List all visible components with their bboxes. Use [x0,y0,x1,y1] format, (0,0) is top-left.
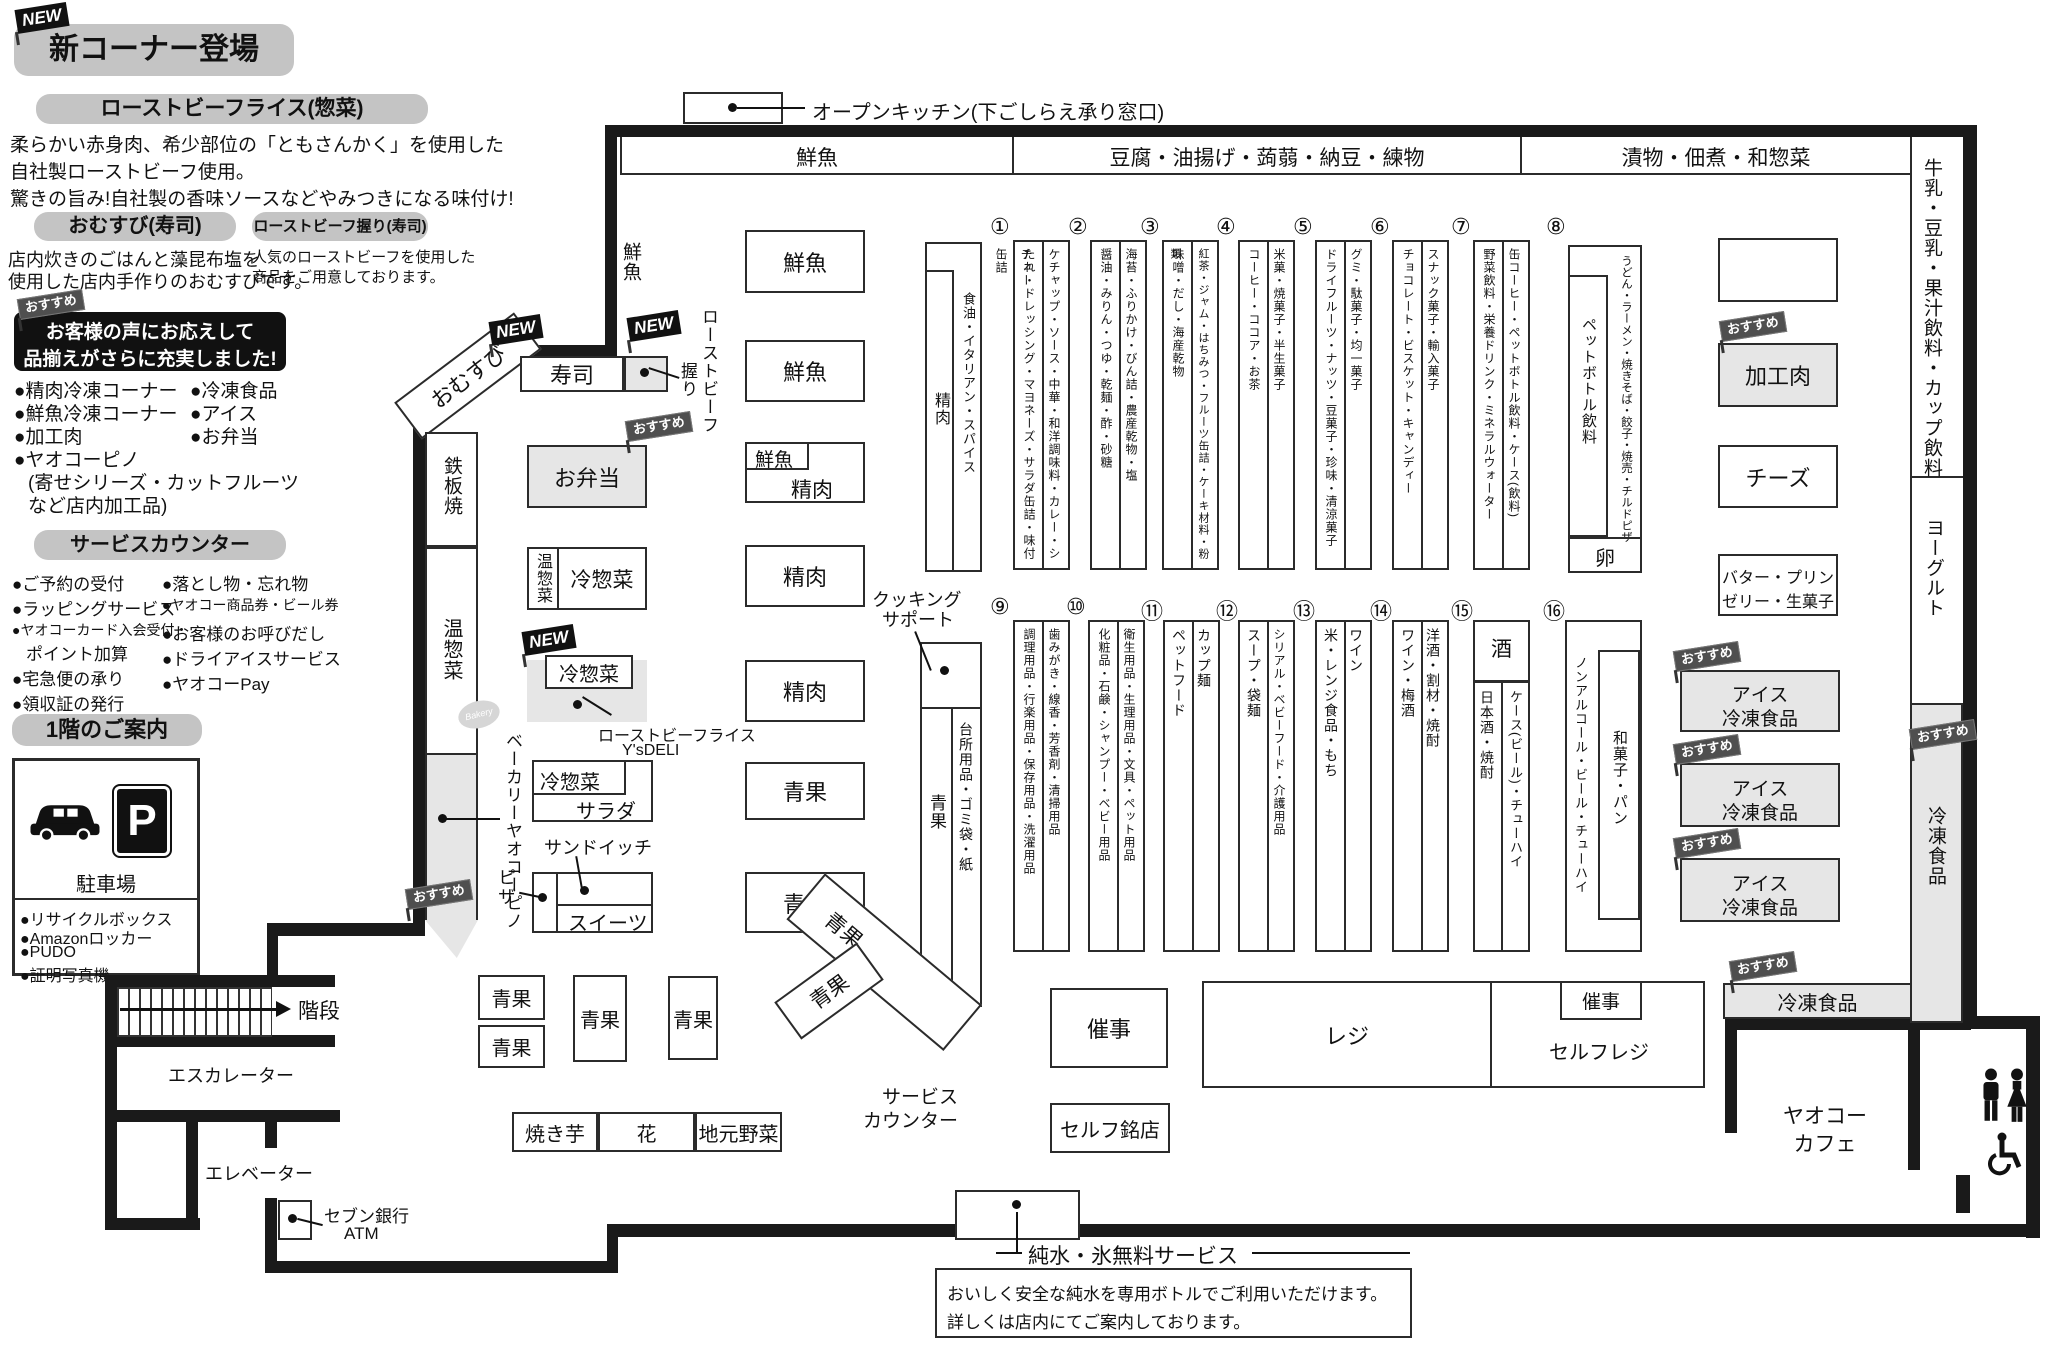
wall-right-upper [1963,125,1977,1026]
salad-label: サラダ [576,795,636,824]
selfmeiten-label: セルフ銘店 [1052,1105,1168,1151]
sake-label: 酒 [1475,628,1528,668]
aisle-9-left: 調理用品・行楽用品・保存用品・洗濯用品 [1015,628,1043,944]
wall-bottom [612,1224,2040,1237]
osusume-flag-icon: おすすめ [1673,734,1741,765]
nigiri-dot [640,368,649,377]
obento-box: お弁当 [527,445,647,508]
aisle-number: ③ [1140,214,1160,240]
woman-icon [2004,1068,2030,1124]
wall-room-bottom [105,1218,200,1230]
osusume-flag-icon: おすすめ [1673,641,1741,672]
kakoniku-label: 加工肉 [1720,345,1836,405]
seiniku-label: 精肉 [932,392,948,426]
aisle-13-right: ワイン [1342,628,1370,944]
empty-box [1718,238,1838,302]
ice-frozen-box: アイス 冷凍食品 [1680,670,1840,732]
selfmeiten-box: セルフ銘店 [1050,1103,1170,1153]
reisozai-label: 冷惣菜 [547,657,631,687]
osusume-flag-icon: おすすめ [1673,828,1741,859]
seika-diagonal-tag: 青果 [774,942,884,1039]
wall-stairs-top [105,975,335,987]
wall-bottom-left [267,1261,613,1273]
seiniku-box: 精肉 [745,660,865,722]
stairs-arrow-line [120,1008,278,1011]
ysdeli-label: Y'sDELI [622,742,679,760]
divider [624,762,626,793]
cafe-label-1: ヤオコー [1755,1100,1895,1130]
stairs [117,987,272,1037]
divider [1501,682,1503,950]
aisle-10: 化粧品・石鹸・シャンプー・ベビー用品 衛生用品・生理用品・文具・ペット用品 [1088,620,1145,952]
atm-dot [288,1214,297,1223]
sandwich-dot [580,886,589,895]
svc-item: ●宅急便の承り [12,665,124,690]
panel-title-new-corner: 新コーナー登場 [14,24,294,76]
aisle-4: コーヒー・ココア・お茶 米菓・焼菓子・半生菓子 [1238,240,1295,570]
reisozai-box: 冷惣菜 [545,655,633,689]
aisle-4-right: 米菓・焼菓子・半生菓子 [1265,248,1293,562]
parking-sign-icon: P [114,786,170,856]
aisle-1-left: たれ・ドレッシング・マヨネーズ・サラダ缶詰・味付缶詰 [1015,248,1043,562]
saiji-box: 催事 [1050,988,1168,1068]
reji-label: レジ [1204,983,1490,1086]
atm-label: ATM [344,1224,379,1244]
aisle-1: たれ・ドレッシング・マヨネーズ・サラダ缶詰・味付缶詰 ケチャップ・ソース・中華・… [1013,240,1070,570]
aisle-number: ⑥ [1370,214,1390,240]
sandwich-label: サンドイッチ [544,834,652,860]
parking-label: 駐車場 [12,868,200,897]
aisle-number: ⑧ [1546,214,1566,240]
aisle-7-right: 缶コーヒー・ペットボトル飲料・ケース(飲料) [1500,248,1528,562]
divider [1490,983,1492,1086]
wall-stairs-left [105,975,117,1230]
wheelchair-icon [1988,1132,2024,1176]
aisle-2-right: 海苔・ふりかけ・びん詰・農産乾物・塩 [1117,248,1145,562]
onsozai-band-label: 温惣菜 [441,618,461,681]
left-sengyo-label: 鮮魚 [621,242,640,282]
service-counter-map-label: サービス [858,1082,958,1109]
aisle-5-left: ドライフルーツ・ナッツ・豆菓子・珍味・清涼菓子 [1317,248,1345,562]
rb-nigiri-desc-1: 人気のローストビーフを使用した [252,246,475,267]
aisle-number: ⑫ [1216,594,1238,626]
aisle-14-right: 洋酒・割材・焼酎 [1419,628,1447,944]
aisle-9-right: 歯みがき・線香・芳香剤・清掃用品 [1040,628,1068,944]
aisle-15-left: 日本酒・焼酎 [1480,690,1494,780]
aisle-5-right: グミ・駄菓子・均一菓子 [1342,248,1370,562]
cooking-dot [940,666,949,675]
aisle-5: ドライフルーツ・ナッツ・豆菓子・珍味・清涼菓子 グミ・駄菓子・均一菓子 [1315,240,1372,570]
aisle-3-left: 味噌・だし・海産乾物 [1164,248,1192,562]
aisle-10-left: 化粧品・石鹸・シャンプー・ベビー用品 [1090,628,1118,944]
sengyo-label: 鮮魚 [747,232,863,291]
wagashi-label: 和菓子・パン [1612,730,1627,826]
band-sengyo: 鮮魚 [622,143,1012,171]
aisle-number: ⑮ [1451,594,1473,626]
aisle-1-right: ケチャップ・ソース・中華・和洋調味料・カレー・シチュー [1040,248,1068,562]
aisle-7: 野菜飲料・栄養ドリンク・ミネラルウォーター 缶コーヒー・ペットボトル飲料・ケース… [1473,240,1530,570]
aisle-6: チョコレート・ビスケット・キャンディー スナック菓子・輸入菓子 [1392,240,1449,570]
aisle-8-inner: ペットボトル飲料 [1568,275,1608,537]
service-counter-header: サービスカウンター [34,530,286,560]
pure-water-dot [1012,1200,1021,1209]
ice-label: アイス [1682,680,1838,707]
svc-item: ●ラッピングサービス [12,595,175,620]
butter-label-1: バター・プリン [1720,564,1836,588]
jimoto-label: 地元野菜 [697,1114,780,1150]
parking-divider [14,898,198,900]
svc-item: ●お客様のお呼びだし [162,620,325,645]
escalator-label: エスカレーター [168,1062,294,1088]
store-floor-map: NEW 新コーナー登場 ローストビーフライス(惣菜) 柔らかい赤身肉、希少部位の… [0,0,2048,1348]
onsozai-reisozai-box: 温惣菜 冷惣菜 [527,547,647,610]
aisle-10-right: 衛生用品・生理用品・文具・ペット用品 [1115,628,1143,944]
reisozai-cell-label: 冷惣菜 [559,549,645,608]
rb-rice-header: ローストビーフライス(惣菜) [36,94,428,124]
kitchen-goods-aisle: 青果 台所用品・ゴミ袋・紙 [920,642,982,1007]
seika-label: 青果 [670,978,716,1058]
band-yogurt: ヨーグルト [1924,518,1943,618]
osusume-flag-icon: おすすめ [1729,951,1797,982]
seika-label: 青果 [777,945,881,1037]
reisozai-salad-box: 冷惣菜 サラダ [532,760,653,822]
jimoto-box: 地元野菜 [695,1112,782,1152]
ice-label2: 冷凍食品 [1682,704,1838,731]
pizza-dot [538,893,547,902]
sengyo-label: 鮮魚 [755,445,793,472]
reisozai-label: 冷惣菜 [540,766,600,795]
service-counter-map-label2: カウンター [850,1106,958,1133]
aisle-3: 味噌・だし・海産乾物 紅茶・ジャム・はちみつ・フルーツ缶詰・ケーキ材料・粉類 [1162,240,1219,570]
aisle-number: ④ [1216,214,1236,240]
sweets-label: スイーツ [568,907,648,936]
ice-frozen-box: アイス 冷凍食品 [1680,858,1840,922]
seika-box: 青果 [668,976,718,1060]
aisle-2-left: 醤油・みりん・つゆ・乾麺・酢・砂糖 [1092,248,1120,562]
saiji-small-box: 催事 [1560,981,1642,1020]
sengyo-seiniku-box: 鮮魚 精肉 [745,442,865,503]
omusubi-header: おむすび(寿司) [34,212,236,241]
pure-water-text-1: おいしく安全な純水を専用ボトルでご利用いただけます。 [947,1280,1387,1305]
cheese-box: チーズ [1718,445,1838,508]
butter-label-2: ゼリー・生菓子 [1720,588,1836,612]
sengyo-label: 鮮魚 [747,342,863,400]
osusume-flag-icon: おすすめ [1719,311,1787,342]
egg-label: 卵 [1570,541,1640,571]
rb-nigiri-header: ローストビーフ握り(寿司) [252,212,428,241]
osusume-flag-icon: おすすめ [625,411,693,442]
kakoniku-box: 加工肉 [1718,343,1838,407]
svc-item: ●ヤオコー商品券・ビール券 [162,595,338,615]
seika-box: 青果 [745,762,865,820]
aisle-number: ⑭ [1370,594,1392,626]
aisle-12-left: スープ・袋麺 [1240,628,1268,944]
pizza-label: ピザ [497,868,515,906]
sushi-label: 寿司 [522,358,622,390]
rb-rice-dot [573,700,582,709]
aisle-9: 調理用品・行楽用品・保存用品・洗濯用品 歯みがき・線香・芳香剤・清掃用品 [1013,620,1070,952]
seika-box: 青果 [573,975,627,1062]
cheese-label: チーズ [1720,447,1836,506]
butter-box: バター・プリン ゼリー・生菓子 [1718,554,1838,616]
seiniku-box: 精肉 [745,545,865,607]
aisle-number: ⑦ [1451,214,1471,240]
wall-room-divider [186,1122,198,1220]
voice-banner-line1: お客様の声にお応えして [14,317,286,344]
ice-label2: 冷凍食品 [1682,893,1838,920]
frozen-band-bottom-label: 冷凍食品 [1723,988,1912,1014]
oil-spice-label: 食油・イタリアン・スパイス [962,292,975,474]
expanded-item: ●お弁当 [190,422,258,449]
seika-label: 青果 [818,905,869,955]
aisle-number: ⑯ [1543,594,1565,626]
svc-item: ●ご予約の受付 [12,570,124,595]
teppan-label: 鉄板焼 [442,456,461,516]
hana-label: 花 [600,1114,693,1150]
band-line [620,173,1912,175]
pure-water-dash [996,1252,1022,1254]
wall-right-lower [2026,1016,2040,1238]
new-flag-icon: NEW [521,624,576,655]
open-kitchen-line [737,107,805,109]
rb-nigiri-desc-2: 商品をご用意しております。 [252,266,445,287]
wall-stub [265,1122,277,1148]
seika-label: 青果 [747,764,863,818]
wall-cafe-right [1908,1030,1920,1170]
aisle-13: 米・レンジ食品・もち ワイン [1315,620,1372,952]
divider [951,707,953,1005]
seika-cell-label: 青果 [928,794,945,830]
hana-box: 花 [598,1112,695,1152]
sushi-box: 寿司 [520,356,624,392]
band-tofu: 豆腐・油揚げ・蒟蒻・納豆・練物 [1014,143,1520,171]
aisle-7-left: 野菜飲料・栄養ドリンク・ミネラルウォーター [1475,248,1503,562]
expanded-item: など店内加工品) [28,491,167,518]
aisle-11-left: ペットフード [1165,628,1193,944]
wall-escalator-bottom [113,1110,340,1122]
rb-nigiri-vlabel2: 握り [679,362,696,398]
pure-water-title: 純水・氷無料サービス [1028,1240,1238,1270]
aisle-16-inner: 和菓子・パン [1598,650,1640,920]
voice-banner-line2: 品揃えがさらに充実しました! [14,344,286,371]
open-kitchen-dot [728,103,737,112]
ice-label: アイス [1682,774,1838,801]
cafe-label-2: カフェ [1755,1128,1895,1158]
bakery-band-tip [425,920,478,958]
wall-left-bottom-h [267,923,425,936]
band-tsukemono: 漬物・佃煮・和惣菜 [1522,143,1910,171]
divider [556,904,651,906]
aisle-15-right: ケース(ビール)・チューハイ [1509,690,1522,869]
rb-rice-desc-2: 自社製ローストビーフ使用。 [10,157,255,184]
parking-item: ●PUDO [20,944,76,962]
wall-left-connector [267,923,278,981]
new-flag-icon: NEW [626,310,681,341]
wall-left-upper [605,125,617,350]
ice-label2: 冷凍食品 [1682,798,1838,825]
sengyo-box: 鮮魚 [745,340,865,402]
aisle-6-left: チョコレート・ビスケット・キャンディー [1394,248,1422,562]
man-icon [1980,1068,2002,1124]
wall-left-mid [413,417,425,927]
seiniku-label: 精肉 [747,662,863,720]
rb-rice-desc-1: 柔らかい赤身肉、希少部位の「ともさんかく」を使用した [10,130,504,157]
aisle-8-right: うどん・ラーメン・焼きそば・餃子・焼売・チルドピザ [1620,255,1632,543]
seika-box: 青果 [478,1025,545,1068]
aisle-14-left: ワイン・梅酒 [1394,628,1422,944]
ice-label: アイス [1682,869,1838,896]
wall-cafe-left [1725,1018,1737,1133]
aisle-number: ⑩ [1066,594,1086,620]
aisle-15: 酒 日本酒・焼酎 ケース(ビール)・チューハイ [1473,620,1530,952]
pure-water-rule [1252,1252,1410,1254]
ice-frozen-box: アイス 冷凍食品 [1680,763,1840,827]
selfreji-label: セルフレジ [1504,1035,1694,1065]
seiniku-inner-aisle: 精肉 [925,270,954,572]
aisle-4-left: コーヒー・ココア・お茶 [1240,248,1268,562]
bakery-line [446,818,500,820]
rb-nigiri-vlabel: ローストビーフ [700,308,717,434]
floor-guide-header: 1階のご案内 [12,714,202,746]
aisle-12: スープ・袋麺 シリアル・ベビーフード・介護用品 [1238,620,1295,952]
svc-item: ●落とし物・忘れ物 [162,570,308,595]
saiji-label: 催事 [1562,983,1640,1018]
car-icon [28,796,102,850]
aisle-number: ⑪ [1141,594,1163,626]
sengyo-box: 鮮魚 [745,230,865,293]
aisle-16-left: ノンアルコール・ビール・チューハイ [1574,656,1587,894]
aisle-14: ワイン・梅酒 洋酒・割材・焼酎 [1392,620,1449,952]
aisle-2: 醤油・みりん・つゆ・乾麺・酢・砂糖 海苔・ふりかけ・びん詰・農産乾物・塩 [1090,240,1147,570]
seika-label: 青果 [575,977,625,1060]
seika-box: 青果 [478,975,545,1020]
svc-item: ポイント加算 [26,640,128,665]
pure-water-callout: おいしく安全な純水を専用ボトルでご利用いただけます。 詳しくは店内にてご案内して… [935,1268,1412,1338]
aisle-number: ⑨ [990,594,1010,620]
divider [556,874,558,931]
aisle-11-right: カップ麺 [1190,628,1218,944]
wall-restroom-divider [1956,1175,1970,1213]
seiniku-label: 精肉 [747,547,863,605]
voice-banner: お客様の声にお応えして 品揃えがさらに充実しました! [14,312,286,371]
divider [1570,537,1640,539]
parking-item: ●証明写真機 [20,962,110,986]
svc-item: ●ドライアイスサービス [162,645,341,670]
pet-bottle-label: ペットボトル飲料 [1581,317,1596,445]
aisle-11: ペットフード カップ麺 [1163,620,1220,952]
yakiimo-label: 焼き芋 [514,1114,596,1150]
aisle-number: ⑤ [1293,214,1313,240]
frozen-band-right-label: 冷凍食品 [1926,806,1945,886]
aisle-number: ⑬ [1293,594,1315,626]
obento-label: お弁当 [529,447,645,506]
aisle-3-right: 紅茶・ジャム・はちみつ・フルーツ缶詰・ケーキ材料・粉類 [1189,248,1217,562]
pure-water-line [1016,1212,1018,1252]
yakiimo-box: 焼き芋 [512,1112,598,1152]
aisle-12-right: シリアル・ベビーフード・介護用品 [1265,628,1293,944]
bakery-dot [438,814,447,823]
stairs-arrow-head [276,1001,291,1017]
rb-rice-desc-3: 驚きの旨み!自社製の香味ソースなどやみつきになる味付け! [10,184,514,211]
saiji-label: 催事 [1052,990,1166,1066]
kaidan-label: 階段 [298,995,340,1025]
wall-top [605,125,1977,137]
pure-water-text-2: 詳しくは店内にてご案内しております。 [947,1308,1250,1333]
svc-item: ●領収証の発行 [12,690,124,715]
onsozai-cell-label: 温惣菜 [534,553,550,604]
aisle-13-left: 米・レンジ食品・もち [1317,628,1345,944]
aisle-number: ① [990,214,1010,240]
band-milk: 牛乳・豆乳・果汁飲料・カップ飲料 [1922,158,1941,478]
svc-item: ●ヤオコーPay [162,670,270,695]
wall-atm-left [265,1198,277,1273]
kitchen-goods-label: 台所用品・ゴミ袋・紙 [959,722,973,872]
elevator-label: エレベーター [205,1160,313,1186]
seika-label: 青果 [480,1027,543,1066]
seiniku-label: 精肉 [791,474,833,504]
aisle-6-right: スナック菓子・輸入菓子 [1419,248,1447,562]
open-kitchen-label: オープンキッチン(下ごしらえ承り窓口) [812,96,1164,125]
sandwich-sweets-box: スイーツ [532,872,653,933]
cooking-support-label2: サポート [882,606,954,632]
aisle-number: ② [1068,214,1088,240]
seika-label: 青果 [480,977,543,1018]
